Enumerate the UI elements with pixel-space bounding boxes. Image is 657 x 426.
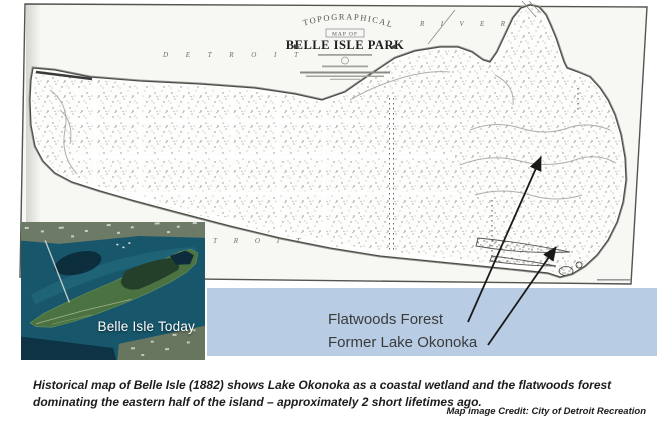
credit-text: Map image Credit: City of Detroit Recrea… xyxy=(446,406,646,417)
river-label-top-east: R I V E R xyxy=(419,20,506,28)
map-imprint xyxy=(597,279,631,281)
satellite-inset: Belle Isle Today xyxy=(21,222,205,360)
belle-isle-today-label: Belle Isle Today xyxy=(97,319,195,334)
flatwoods-forest-label: Flatwoods Forest xyxy=(328,311,443,328)
map-title-mid: MAP OF xyxy=(332,32,358,38)
slide: TOPOGRAPHICAL MAP OF BELLE ISLE PARK D E… xyxy=(0,0,657,426)
satellite-scene xyxy=(21,222,205,360)
map-title-main: BELLE ISLE PARK xyxy=(286,38,404,52)
former-lake-okonoka-label: Former Lake Okonoka xyxy=(328,334,477,351)
